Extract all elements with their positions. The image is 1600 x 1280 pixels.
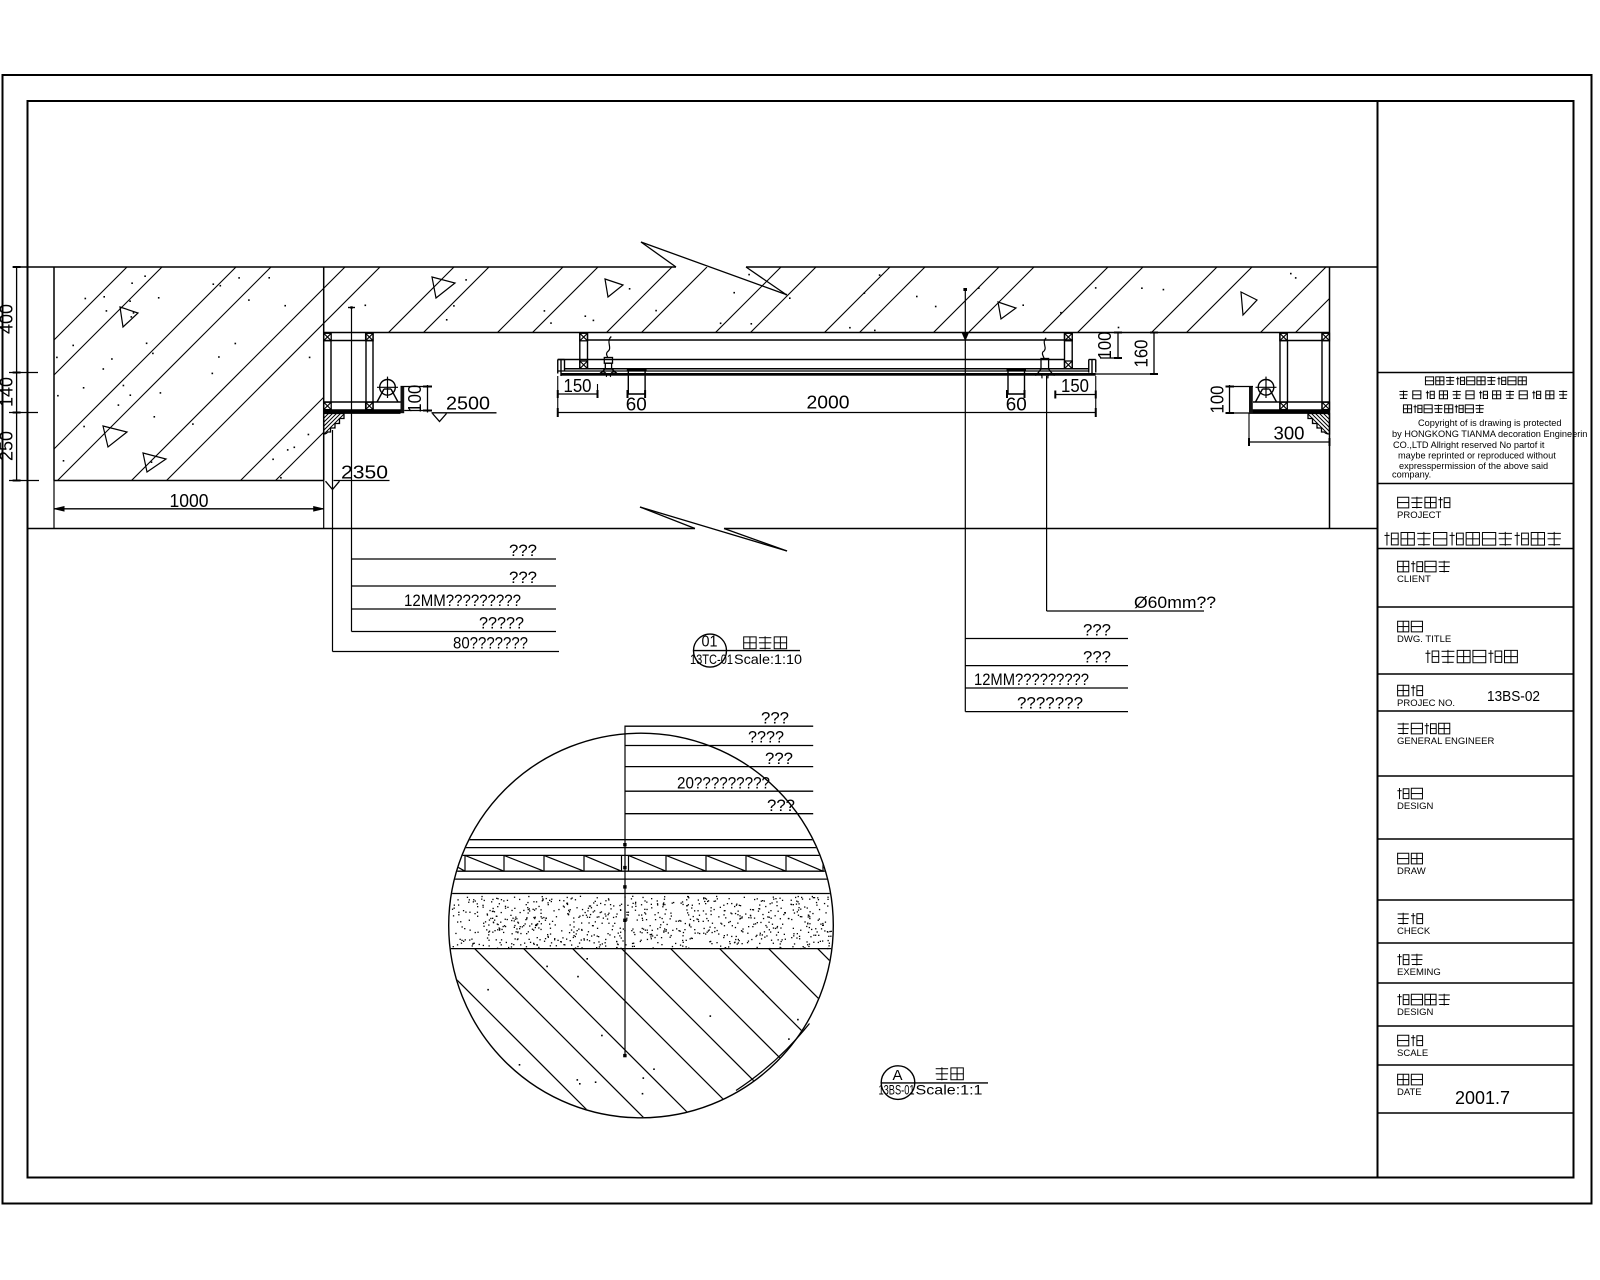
- svg-text:DESIGN: DESIGN: [1397, 1007, 1434, 1018]
- svg-text:2500: 2500: [446, 394, 490, 414]
- svg-text:01: 01: [702, 634, 718, 651]
- svg-text:100: 100: [1208, 386, 1228, 414]
- svg-text:?????: ?????: [479, 614, 524, 633]
- svg-text:CO.,LTD Allright reserved No p: CO.,LTD Allright reserved No partof it: [1393, 440, 1545, 450]
- svg-text:100: 100: [1095, 332, 1115, 360]
- svg-text:160: 160: [1132, 340, 1152, 368]
- svg-text:by HONGKONG TIANMA decoration: by HONGKONG TIANMA decoration Engineerin: [1392, 429, 1587, 439]
- svg-text:???: ???: [767, 796, 795, 815]
- svg-text:60: 60: [1006, 395, 1027, 415]
- svg-text:13BS-01: 13BS-01: [879, 1082, 915, 1098]
- svg-text:????: ????: [748, 728, 784, 747]
- svg-text:150: 150: [1061, 376, 1089, 396]
- svg-text:maybe reprinted or reproduced: maybe reprinted or reproduced without: [1398, 451, 1556, 461]
- svg-text:400: 400: [0, 304, 17, 334]
- svg-text:???: ???: [509, 568, 537, 587]
- svg-text:80???????: 80???????: [453, 634, 528, 653]
- svg-text:12MM?????????: 12MM?????????: [974, 670, 1089, 689]
- svg-text:140: 140: [0, 377, 17, 407]
- svg-text:60: 60: [626, 395, 647, 415]
- svg-text:Scale:1:10: Scale:1:10: [734, 651, 802, 667]
- svg-text:DATE: DATE: [1397, 1087, 1422, 1098]
- svg-text:???: ???: [765, 749, 793, 768]
- svg-text:300: 300: [1274, 424, 1305, 444]
- svg-text:???????: ???????: [1017, 694, 1083, 713]
- svg-text:SCALE: SCALE: [1397, 1048, 1428, 1059]
- svg-text:250: 250: [0, 431, 17, 461]
- svg-text:Copyright of is drawing is pro: Copyright of is drawing is protected: [1418, 418, 1562, 428]
- svg-text:20?????????: 20?????????: [677, 774, 770, 793]
- svg-text:2000: 2000: [807, 393, 850, 413]
- svg-text:DESIGN: DESIGN: [1397, 801, 1434, 812]
- svg-text:PROJEC NO.: PROJEC NO.: [1397, 698, 1455, 709]
- svg-text:???: ???: [509, 541, 537, 560]
- svg-text:CLIENT: CLIENT: [1397, 574, 1431, 585]
- svg-text:CHECK: CHECK: [1397, 926, 1431, 937]
- svg-text:13BS-02: 13BS-02: [1487, 689, 1540, 705]
- svg-text:???: ???: [1083, 621, 1111, 640]
- svg-text:???: ???: [1083, 648, 1111, 667]
- svg-text:12MM?????????: 12MM?????????: [404, 591, 521, 610]
- svg-text:2350: 2350: [341, 463, 388, 483]
- svg-text:Scale:1:1: Scale:1:1: [916, 1082, 983, 1098]
- svg-text:2001.7: 2001.7: [1455, 1088, 1510, 1108]
- svg-text:1000: 1000: [170, 491, 209, 511]
- svg-text:company.: company.: [1392, 470, 1431, 480]
- svg-text:150: 150: [564, 376, 592, 396]
- svg-text:DRAW: DRAW: [1397, 866, 1426, 877]
- svg-text:100: 100: [405, 385, 425, 413]
- svg-text:GENERAL ENGINEER: GENERAL ENGINEER: [1397, 736, 1494, 747]
- svg-text:EXEMING: EXEMING: [1397, 967, 1441, 978]
- svg-text:DWG. TITLE: DWG. TITLE: [1397, 634, 1451, 645]
- svg-text:Ø60mm??: Ø60mm??: [1134, 593, 1216, 612]
- svg-text:???: ???: [761, 709, 789, 728]
- svg-text:PROJECT: PROJECT: [1397, 510, 1442, 521]
- svg-text:13TC-01: 13TC-01: [690, 651, 733, 667]
